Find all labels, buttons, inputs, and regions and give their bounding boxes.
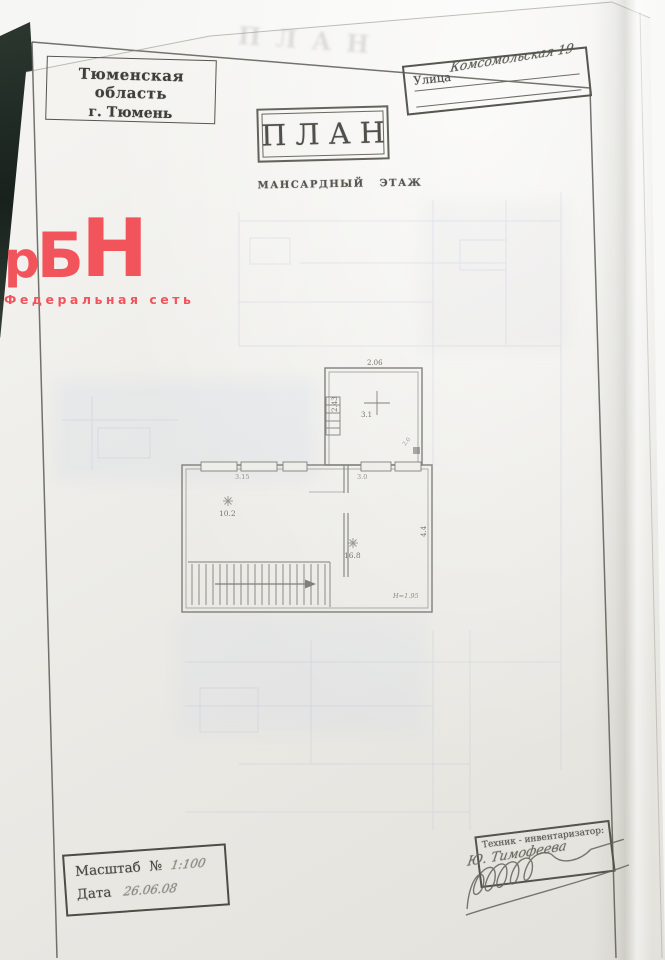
scale-stamp: Масштаб № 1:100 Дата 26.06.08	[62, 843, 230, 916]
region-line-2: г. Тюмень	[46, 103, 214, 123]
partition-wall	[309, 465, 348, 577]
plan-title: ПЛАН	[252, 115, 395, 153]
date-label: Дата	[76, 884, 112, 902]
walls-upper-room	[325, 368, 422, 465]
rbn-letters: р Б Н	[4, 218, 194, 280]
dim-upper-height: 2.43	[331, 396, 339, 412]
plan-title-inner-border: ПЛАН	[261, 110, 384, 157]
rbn-logo: р Б Н Федеральная сеть	[4, 218, 194, 307]
rbn-letter-p: р	[4, 241, 37, 280]
scale-label: Масштаб	[75, 859, 142, 880]
room-label-left: 10.2	[219, 509, 236, 518]
room-marker-right	[348, 538, 358, 548]
dim-right-height: 4.4	[420, 525, 428, 537]
scanned-page: ПЛАН Тюменская область г. Тюмень Улица К…	[0, 0, 665, 960]
dim-left-width: 3.15	[235, 473, 249, 481]
door-note: 2.0	[402, 436, 413, 447]
walls-lower-block	[182, 465, 432, 612]
room-label-upper: 3.1	[361, 411, 372, 419]
rbn-subtitle: Федеральная сеть	[4, 294, 194, 307]
region-line-1: Тюменская область	[47, 64, 216, 104]
floor-plan: 2.06 2.43 3.1 2.0 3.15 3.0 4.4 10.2 16.8…	[165, 355, 450, 630]
scale-value: 1:100	[169, 856, 206, 873]
date-value: 26.06.08	[123, 881, 179, 899]
height-note: Н=1.95	[392, 592, 419, 600]
windows	[201, 462, 421, 471]
room-label-right: 16.8	[344, 551, 361, 560]
rbn-letter-n: Н	[81, 218, 145, 280]
plan-title-box: ПЛАН	[256, 105, 389, 162]
dim-upper-width: 2.06	[367, 359, 383, 367]
upper-room-door	[413, 447, 420, 454]
stairs-arrow	[215, 580, 316, 589]
number-sign: №	[149, 858, 163, 875]
room-marker-left	[223, 496, 233, 506]
street-label: Улица	[413, 70, 452, 88]
paper-fold-shadow	[592, 0, 652, 960]
rbn-letter-b: Б	[37, 232, 81, 280]
dim-right-width: 3.0	[357, 473, 367, 481]
region-stamp: Тюменская область г. Тюмень	[45, 56, 217, 124]
